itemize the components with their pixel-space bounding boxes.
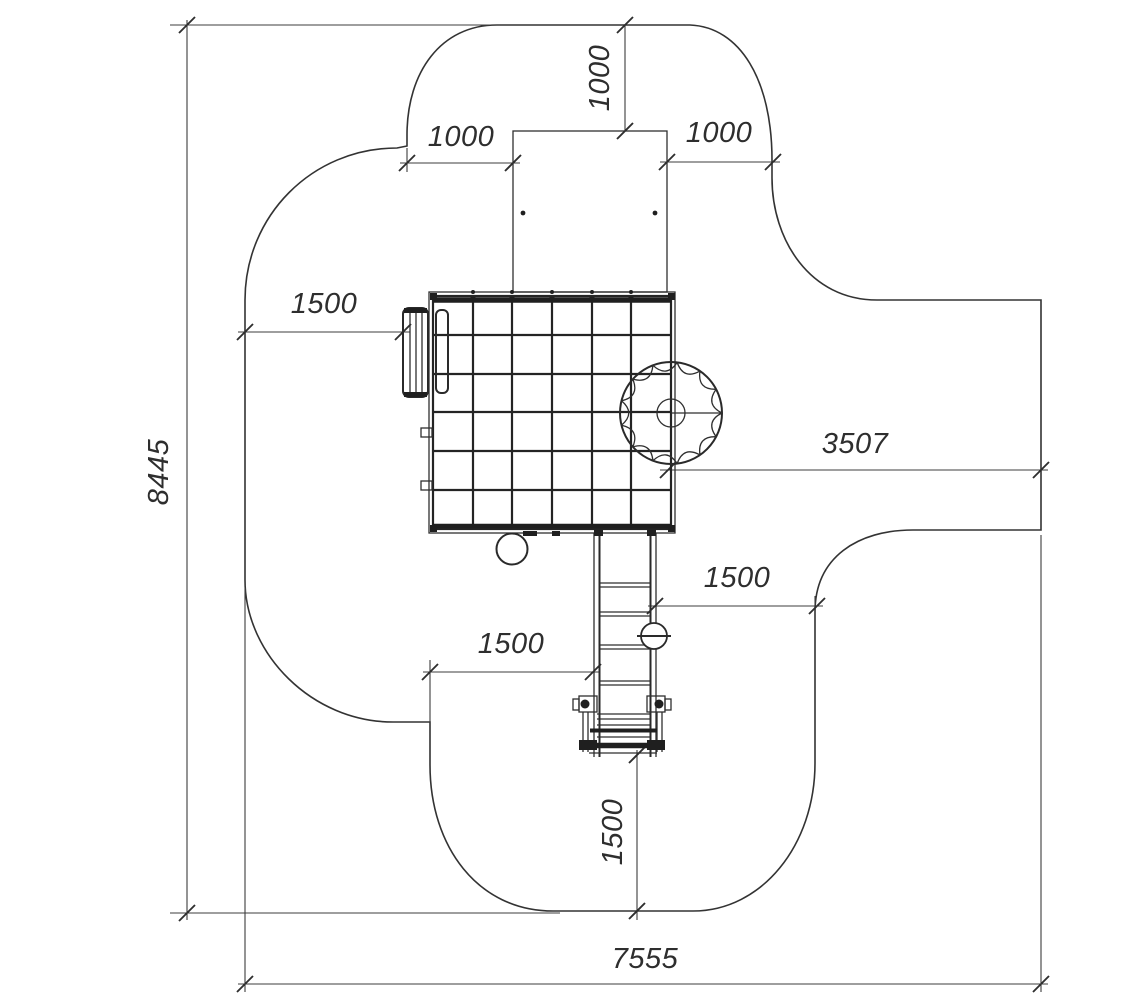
plan-drawing: 8445 1000 1000 1000 1500 3507 1500 1500 … xyxy=(0,0,1126,1000)
platform-post xyxy=(510,297,515,302)
post-dot xyxy=(510,290,514,294)
ladder-top-mount xyxy=(594,530,603,536)
dim-overall-width-label: 7555 xyxy=(612,943,679,975)
post-dot xyxy=(629,290,633,294)
slide-scallop xyxy=(621,379,634,401)
stair-handrail-nub xyxy=(573,699,579,710)
post-dot xyxy=(590,290,594,294)
swing-bay-rect xyxy=(513,131,667,292)
post-dot xyxy=(471,290,475,294)
dim-overall-height-label: 8445 xyxy=(143,438,175,505)
play-tower-platform xyxy=(421,290,675,536)
ladder-top-mount xyxy=(647,530,656,536)
platform-post xyxy=(629,297,634,302)
dim-top-depth-label: 1000 xyxy=(584,45,616,112)
activity-panel xyxy=(403,308,448,397)
dim-top-right-label: 1000 xyxy=(686,117,753,149)
panel-door xyxy=(436,310,448,393)
platform-post xyxy=(471,297,476,302)
stair-post-cap xyxy=(581,700,590,709)
dim-left-width-label: 1500 xyxy=(291,288,358,320)
equipment xyxy=(403,131,722,757)
dim-bottom-depth-label: 1500 xyxy=(597,799,629,866)
panel-cap xyxy=(404,308,427,313)
platform-post xyxy=(550,297,555,302)
dim-slide-exit-label: 3507 xyxy=(822,428,890,460)
platform-corner-post xyxy=(430,293,437,300)
drawing-canvas: 8445 1000 1000 1000 1500 3507 1500 1500 … xyxy=(0,0,1126,1000)
platform-post xyxy=(590,297,595,302)
edge-mark xyxy=(523,531,537,536)
platform-corner-post xyxy=(668,525,675,532)
safety-zone xyxy=(245,25,1041,911)
post-dot xyxy=(550,290,554,294)
post-dot xyxy=(521,211,526,216)
left-edge-bracket xyxy=(421,428,432,437)
stair-foot xyxy=(647,740,665,750)
slide-scallop xyxy=(621,425,634,447)
platform-corner-post xyxy=(430,525,437,532)
stair-handrail-nub xyxy=(665,699,671,710)
edge-mark xyxy=(552,531,560,536)
stair-post-cap xyxy=(655,700,664,709)
post-dot xyxy=(653,211,658,216)
swing-bay-zone xyxy=(513,131,667,292)
panel-cap xyxy=(404,392,427,397)
platform-grid xyxy=(433,296,671,529)
round-post xyxy=(497,534,528,565)
safety-zone-outline xyxy=(245,25,1041,911)
dim-ladder-right-label: 1500 xyxy=(704,562,771,594)
platform-corner-post xyxy=(668,293,675,300)
left-edge-bracket xyxy=(421,481,432,490)
stair-foot xyxy=(579,740,597,750)
dimension-labels: 8445 1000 1000 1000 1500 3507 1500 1500 … xyxy=(143,45,890,975)
access-ladder xyxy=(594,530,671,757)
dim-ladder-left-label: 1500 xyxy=(478,628,545,660)
dim-top-left-label: 1000 xyxy=(428,121,495,153)
